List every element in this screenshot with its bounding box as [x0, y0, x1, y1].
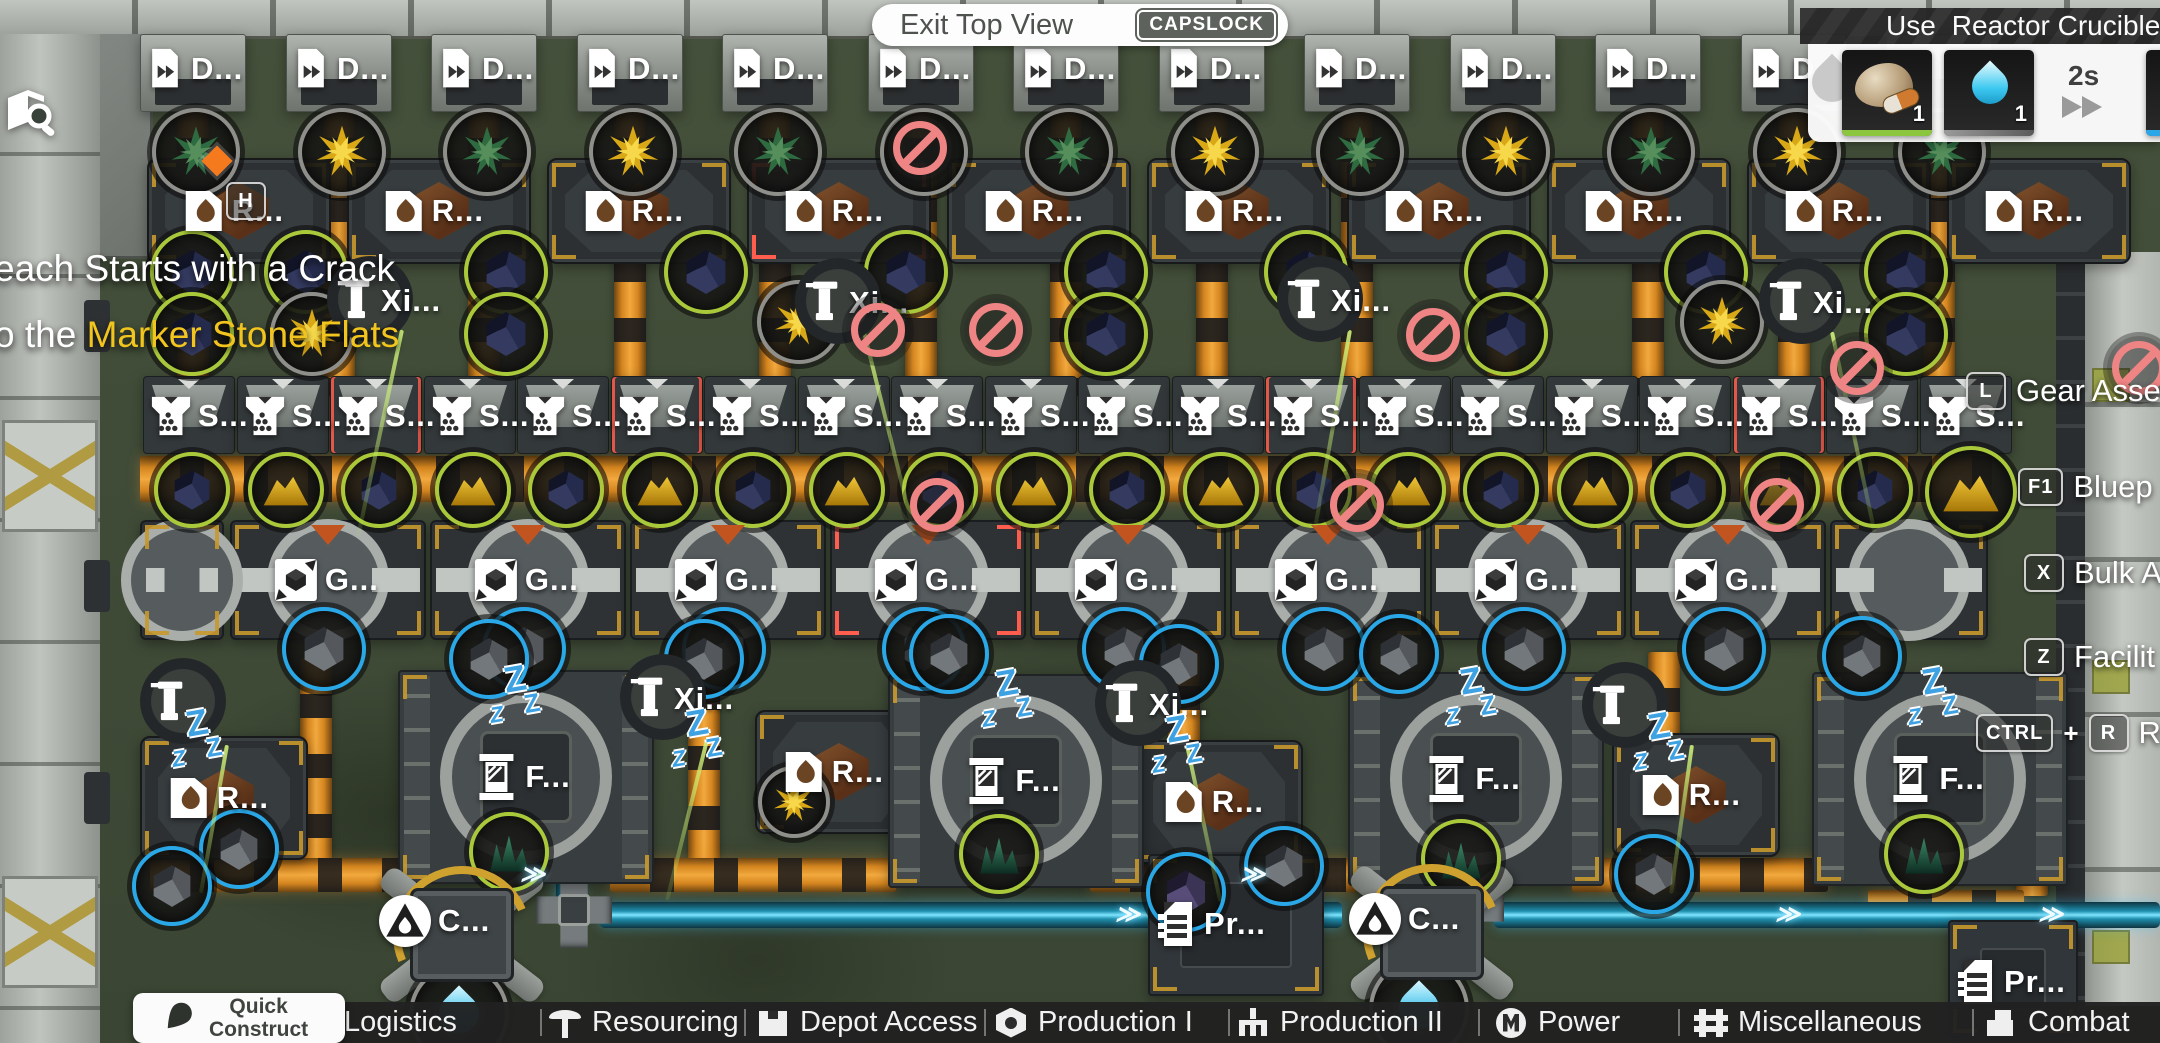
resource-node-icon — [1822, 616, 1902, 696]
toolbar-tab-label: Production II — [1280, 1006, 1443, 1039]
item-card-originium[interactable]: 1 — [1842, 50, 1932, 136]
resourcing-icon — [548, 1008, 582, 1038]
resource-node-icon — [154, 452, 230, 528]
resource-node-icon — [528, 452, 604, 528]
toolbar-tab[interactable]: Combat — [1984, 1002, 2130, 1043]
resource-node-icon — [1650, 452, 1726, 528]
depot-icon — [1164, 47, 1204, 91]
exit-top-view-label: Exit Top View — [900, 9, 1073, 42]
conveyor-belt-horizontal[interactable] — [1572, 858, 1828, 892]
machine-sifter[interactable]: S... — [891, 376, 983, 454]
machine-label: D... — [873, 47, 971, 91]
idle-zzz-icon — [1436, 664, 1506, 736]
quest-location-link[interactable]: Marker Stone Flats — [87, 314, 400, 355]
machine-label: D... — [1018, 47, 1116, 91]
quick-construct-pin-icon — [159, 1000, 195, 1036]
toolbar-divider — [984, 1009, 986, 1036]
machine-sifter[interactable]: S... — [517, 376, 609, 454]
item-card-water[interactable]: 1 — [1944, 50, 2034, 136]
cross-brace-plate — [2, 876, 98, 988]
depot-access-icon — [756, 1008, 790, 1038]
resource-node-icon — [1183, 452, 1259, 528]
blocked-status-icon — [1825, 336, 1889, 400]
hotkey-label: Ro — [2139, 715, 2160, 751]
rarity-bar — [1842, 130, 1932, 136]
flow-direction-icon — [2038, 900, 2063, 929]
quest-title: each Starts with a Crack — [0, 248, 395, 290]
right-conveyor-track — [2056, 252, 2086, 1006]
blocked-status-icon — [964, 298, 1028, 362]
toolbar-divider — [1678, 1009, 1680, 1036]
key-badge: X — [2024, 554, 2064, 592]
wall-socket — [84, 772, 110, 824]
machine-grinder-partial[interactable] — [140, 520, 224, 640]
sifter-icon — [618, 395, 660, 437]
capslock-key-badge: CAPSLOCK — [1137, 10, 1276, 40]
sifter-icon — [431, 395, 473, 437]
machine-sifter[interactable]: S... — [1359, 376, 1451, 454]
machine-label: D... — [727, 47, 825, 91]
hotkey-hint[interactable]: F1 Bluep — [2018, 468, 2153, 506]
press-icon — [1887, 754, 1933, 804]
machine-label: S... — [711, 395, 810, 437]
resource-node-icon — [1464, 292, 1548, 376]
resource-node-icon — [758, 766, 830, 838]
item-count: 1 — [1913, 101, 1925, 127]
toolbar-tab-label: Resourcing — [592, 1006, 739, 1039]
sifter-icon — [1927, 395, 1969, 437]
machine-label: S... — [1740, 395, 1839, 437]
machine-sifter[interactable]: S... — [1078, 376, 1170, 454]
toolbar-tab-label: Miscellaneous — [1738, 1006, 1922, 1039]
idle-zzz-icon — [1142, 712, 1212, 784]
machine-label: S... — [1646, 395, 1745, 437]
toolbar-tab[interactable]: Depot Access — [756, 1002, 977, 1043]
pump-body — [410, 888, 514, 982]
flow-direction-icon — [1115, 900, 1140, 929]
toolbar-tab[interactable]: Miscellaneous — [1694, 1002, 1922, 1043]
machine-label: F... — [963, 756, 1060, 806]
resource-node-icon — [1837, 452, 1913, 528]
machine-label: D... — [582, 47, 680, 91]
key-badge: F1 — [2018, 468, 2063, 506]
fast-forward-icon — [2062, 96, 2106, 118]
depot-icon — [1018, 47, 1058, 91]
build-toolbar: Logistics Resourcing Depot Access Produc… — [282, 1002, 2160, 1043]
machine-label: S... — [1459, 395, 1558, 437]
resource-node-icon — [464, 292, 548, 376]
corner-brackets — [1952, 163, 2126, 259]
key-badge: R — [2089, 714, 2129, 752]
toolbar-tab-label: Depot Access — [800, 1006, 977, 1039]
resource-node-icon — [248, 452, 324, 528]
craft-timer: 2s — [2068, 60, 2099, 92]
depot-icon — [1746, 47, 1786, 91]
production-2-icon — [1236, 1008, 1270, 1038]
combat-icon — [1984, 1008, 2018, 1038]
machine-label: S... — [431, 395, 530, 437]
toolbar-tab[interactable]: Power — [1494, 1002, 1620, 1043]
toolbar-tab[interactable]: Resourcing — [548, 1002, 739, 1043]
resource-node-icon — [435, 452, 511, 528]
machine-drill[interactable]: Xi... — [1767, 272, 1907, 334]
drill-icon — [803, 278, 843, 328]
hotkey-h-badge: H — [226, 182, 266, 220]
drill-icon — [1767, 278, 1807, 328]
toolbar-divider — [1228, 1009, 1230, 1036]
idle-zzz-icon — [1624, 709, 1694, 781]
resource-node-icon — [443, 108, 531, 196]
machine-depot-port[interactable]: D... — [1450, 34, 1556, 112]
sifter-icon — [711, 395, 753, 437]
depot-icon — [582, 47, 622, 91]
rarity-bar — [1944, 130, 2034, 136]
toolbar-tab-label: Logistics — [344, 1006, 457, 1039]
sifter-icon — [992, 395, 1034, 437]
idle-zzz-icon — [972, 666, 1042, 738]
flow-direction-icon — [1775, 900, 1800, 929]
sifter-icon — [1366, 395, 1408, 437]
resource-node-icon — [996, 452, 1072, 528]
machine-label: F... — [1423, 754, 1520, 804]
machine-sifter[interactable]: S... — [1546, 376, 1638, 454]
water-item-icon — [1965, 61, 2016, 112]
machine-sifter[interactable]: S... — [1265, 376, 1357, 454]
machine-depot-port[interactable]: D... — [431, 34, 537, 112]
idle-zzz-icon — [1898, 664, 1968, 736]
resource-node-icon — [1680, 280, 1764, 364]
blocked-status-icon — [846, 298, 910, 362]
sifter-icon — [1740, 395, 1782, 437]
machine-depot-port[interactable]: D... — [1595, 34, 1701, 112]
sifter-icon — [244, 395, 286, 437]
machine-sifter[interactable]: S... — [237, 376, 329, 454]
depot-icon — [1455, 47, 1495, 91]
machine-label: S... — [524, 395, 623, 437]
machine-label: S... — [992, 395, 1091, 437]
idle-zzz-icon — [480, 662, 550, 734]
resource-node-icon — [959, 814, 1039, 894]
corner-brackets — [145, 525, 219, 635]
machine-label: S... — [1272, 395, 1371, 437]
resource-node-icon — [1557, 452, 1633, 528]
sifter-icon — [1085, 395, 1127, 437]
hotkey-label: Bluep — [2073, 469, 2152, 505]
machine-sifter[interactable]: S... — [1733, 376, 1825, 454]
resource-node-icon — [1171, 108, 1259, 196]
resource-node-icon — [1462, 108, 1550, 196]
sifter-icon — [1179, 395, 1221, 437]
machine-sifter[interactable]: S... — [143, 376, 235, 454]
resource-node-icon — [809, 452, 885, 528]
use-item-label: Reactor Crucible — [1952, 10, 2160, 42]
resource-node-icon — [1359, 614, 1439, 694]
flow-direction-icon — [1240, 860, 1265, 889]
blocked-status-icon — [1745, 473, 1809, 537]
resource-node-icon — [1025, 108, 1113, 196]
depot-icon — [727, 47, 767, 91]
hotkey-label: Gear Asse — [2016, 373, 2160, 409]
flow-direction-icon — [520, 860, 545, 889]
blocked-status-icon — [1325, 473, 1389, 537]
sifter-icon — [1646, 395, 1688, 437]
machine-sifter[interactable]: S... — [424, 376, 516, 454]
toolbar-tab-label: Production I — [1038, 1006, 1193, 1039]
machine-label: D... — [1309, 47, 1407, 91]
key-plus: + — [2063, 718, 2078, 749]
resource-node-icon — [1614, 834, 1694, 914]
resource-node-icon — [1089, 452, 1165, 528]
resource-node-icon — [1282, 607, 1366, 691]
key-badge: L — [1966, 372, 2006, 410]
cross-brace-plate — [2, 420, 98, 532]
blocked-status-icon — [1401, 303, 1465, 367]
hotkey-hint[interactable]: CTRL + R Ro — [1976, 714, 2160, 752]
blocked-status-icon — [888, 116, 952, 180]
machine-depot-port[interactable]: D... — [722, 34, 828, 112]
machine-sifter[interactable]: S... — [1639, 376, 1731, 454]
drill-icon — [1285, 276, 1325, 326]
resource-node-icon — [298, 108, 386, 196]
resource-node-icon — [1884, 814, 1964, 894]
hotkey-hint[interactable]: X Bulk A — [2024, 554, 2160, 592]
key-badge: Z — [2024, 638, 2064, 676]
press-icon — [1423, 754, 1469, 804]
hotkey-label: Facilit — [2074, 639, 2155, 675]
sifter-icon — [1459, 395, 1501, 437]
machine-depot-port[interactable]: D... — [140, 34, 246, 112]
sifter-icon — [898, 395, 940, 437]
machine-label: S... — [898, 395, 997, 437]
hotkey-label: Bulk A — [2074, 555, 2160, 591]
machine-sifter[interactable]: S... — [985, 376, 1077, 454]
item-count: 1 — [2015, 101, 2027, 127]
toolbar-tab[interactable]: Production II — [1236, 1002, 1443, 1043]
resource-node-icon — [664, 230, 748, 314]
machine-depot-port[interactable]: D... — [577, 34, 683, 112]
idle-zzz-icon — [162, 706, 232, 778]
sifter-icon — [150, 395, 192, 437]
quick-construct-button[interactable]: Quick Construct — [133, 993, 345, 1043]
depot-icon — [291, 47, 331, 91]
press-icon — [963, 756, 1009, 806]
sifter-icon — [337, 395, 379, 437]
machine-depot-port[interactable]: D... — [286, 34, 392, 112]
resource-node-icon — [282, 607, 366, 691]
machine-label: S... — [244, 395, 343, 437]
use-label: Use — [1886, 10, 1936, 42]
toolbar-tab-label: Power — [1538, 1006, 1620, 1039]
miscellaneous-icon — [1694, 1008, 1728, 1038]
resource-node-icon — [622, 452, 698, 528]
depot-icon — [1600, 47, 1640, 91]
power-icon — [1494, 1008, 1528, 1038]
rarity-bar — [2146, 130, 2160, 136]
resource-node-icon — [734, 108, 822, 196]
production-1-icon — [994, 1008, 1028, 1038]
sifter-icon — [805, 395, 847, 437]
machine-sifter[interactable]: S... — [1452, 376, 1544, 454]
machine-label: S... — [1553, 395, 1652, 437]
machine-label: S... — [618, 395, 717, 437]
depot-icon — [1309, 47, 1349, 91]
machine-sifter[interactable]: S... — [1172, 376, 1264, 454]
toolbar-divider — [1478, 1009, 1480, 1036]
wall-socket — [84, 560, 110, 612]
idle-zzz-icon — [662, 706, 732, 778]
blocked-status-icon — [905, 473, 969, 537]
machine-label: D... — [1600, 47, 1698, 91]
toolbar-divider — [1972, 1009, 1974, 1036]
exit-top-view-button[interactable]: Exit Top View CAPSLOCK — [872, 4, 1288, 46]
game-viewport: D... D... D... D... D... — [0, 0, 2160, 1043]
resource-node-icon — [589, 108, 677, 196]
machine-label: F... — [1887, 754, 1984, 804]
depot-icon — [436, 47, 476, 91]
resource-node-icon — [152, 108, 240, 196]
depot-icon — [873, 47, 913, 91]
depot-icon — [145, 47, 185, 91]
resource-node-icon — [1064, 292, 1148, 376]
machine-label: S... — [150, 395, 249, 437]
drill-icon — [1103, 680, 1143, 730]
sifter-icon — [1553, 395, 1595, 437]
machine-label: F... — [473, 752, 570, 802]
key-badge: CTRL — [1976, 714, 2053, 752]
map-search-icon[interactable] — [6, 86, 60, 140]
machine-label: D... — [291, 47, 389, 91]
toolbar-tab[interactable]: Production I — [994, 1002, 1193, 1043]
machine-label: D... — [1455, 47, 1553, 91]
press-icon — [473, 752, 519, 802]
resource-node-icon — [341, 452, 417, 528]
machine-label: D... — [1164, 47, 1262, 91]
sifter-icon — [1272, 395, 1314, 437]
machine-label: S... — [1366, 395, 1465, 437]
machine-sifter[interactable]: S... — [611, 376, 703, 454]
machine-sifter[interactable]: S... — [704, 376, 796, 454]
glass-panel — [2092, 930, 2130, 964]
resource-node-icon — [1607, 108, 1695, 196]
item-card-clipped[interactable] — [2146, 50, 2160, 136]
resource-node-icon — [1463, 452, 1539, 528]
machine-label: D... — [436, 47, 534, 91]
resource-node-icon — [1316, 108, 1404, 196]
resource-node-icon — [1925, 446, 2017, 538]
toolbar-divider — [540, 1009, 542, 1036]
pump-body — [1380, 886, 1484, 980]
toolbar-divider — [744, 1009, 746, 1036]
machine-label: S... — [1085, 395, 1184, 437]
sifter-icon — [524, 395, 566, 437]
machine-depot-port[interactable]: D... — [1304, 34, 1410, 112]
machine-label: D... — [145, 47, 243, 91]
quick-construct-label: Quick Construct — [209, 995, 308, 1041]
machine-label: S... — [1179, 395, 1278, 437]
quest-objective: o the Marker Stone Flats — [0, 314, 399, 356]
hotkey-hint[interactable]: Z Facilit — [2024, 638, 2155, 676]
hotkey-hint[interactable]: L Gear Asse — [1966, 372, 2160, 410]
toolbar-tab-label: Combat — [2028, 1006, 2130, 1039]
resource-node-icon — [715, 452, 791, 528]
use-reactor-banner: Use Reactor Crucible — [1800, 8, 2160, 44]
